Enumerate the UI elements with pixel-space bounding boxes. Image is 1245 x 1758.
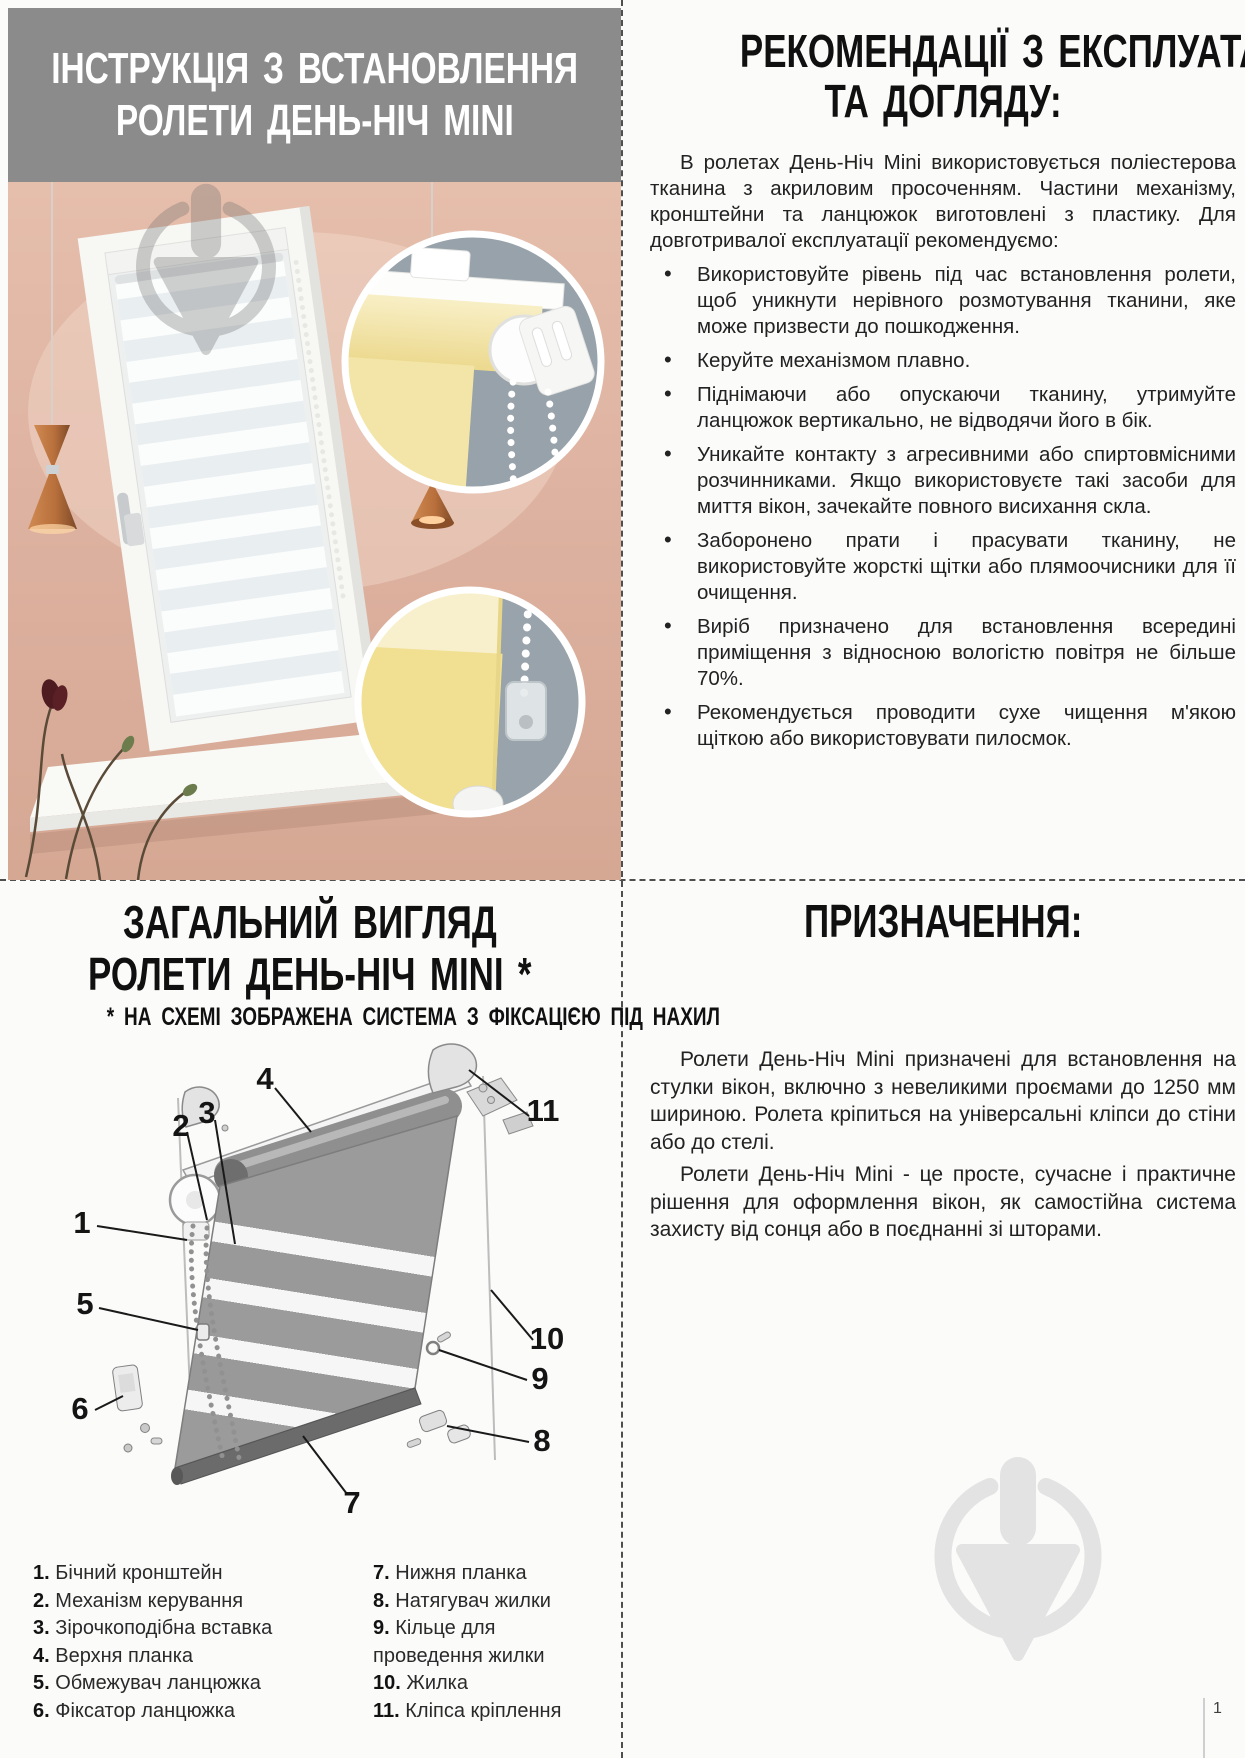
callout-10: 10: [530, 1321, 564, 1356]
callout-6: 6: [71, 1391, 88, 1426]
legend-item: 5. Обмежувач ланцюжка: [33, 1670, 328, 1698]
overview-diagram: 1 2 3 4 5 6 7 8 9 10 11: [35, 1028, 595, 1558]
callout-9: 9: [531, 1361, 548, 1396]
install-section-header: ІНСТРУКЦІЯ З ВСТАНОВЛЕННЯ РОЛЕТИ ДЕНЬ-НІ…: [8, 8, 621, 182]
install-title-line1: ІНСТРУКЦІЯ З ВСТАНОВЛЕННЯ: [0, 43, 661, 95]
callout-3: 3: [198, 1095, 215, 1130]
legend-item: 1. Бічний кронштейн: [33, 1560, 328, 1588]
purpose-paragraph: Ролети День-Ніч Mini - це просте, сучасн…: [650, 1161, 1236, 1244]
install-title-line2: РОЛЕТИ ДЕНЬ-НІЧ MINI: [53, 95, 577, 147]
screw: [222, 1125, 228, 1131]
callout-7: 7: [343, 1485, 360, 1520]
callout-4: 4: [256, 1061, 274, 1096]
diagram-legend-left: 1. Бічний кронштейн 2. Механізм керуванн…: [33, 1560, 328, 1725]
purpose-section: ПРИЗНАЧЕННЯ: Ролети День-Ніч Mini призна…: [650, 896, 1236, 1249]
page-number: 1: [1213, 1700, 1222, 1718]
screw: [436, 1331, 451, 1343]
care-title: РЕКОМЕНДАЦІЇ З ЕКСПЛУАТАЦІЇ ТА ДОГЛЯДУ:: [650, 26, 1236, 126]
care-bullet: •Виріб призначено для встановлення всере…: [650, 614, 1236, 692]
overview-title: ЗАГАЛЬНИЙ ВИГЛЯД РОЛЕТИ ДЕНЬ-НІЧ MINI * …: [10, 896, 610, 1034]
legend-item: 4. Верхня планка: [33, 1643, 328, 1671]
callout-11: 11: [527, 1093, 560, 1128]
footer-divider: [1203, 1698, 1205, 1758]
screw: [141, 1424, 150, 1433]
care-intro: В ролетах День-Ніч Mini використовується…: [650, 150, 1236, 254]
care-section: РЕКОМЕНДАЦІЇ З ЕКСПЛУАТАЦІЇ ТА ДОГЛЯДУ: …: [650, 26, 1236, 752]
care-bullet: •Заборонено прати і прасувати тканину, н…: [650, 528, 1236, 606]
legend-item: 11. Кліпса кріплення: [373, 1698, 601, 1726]
screw: [406, 1438, 421, 1448]
purpose-title: ПРИЗНАЧЕННЯ:: [650, 896, 1236, 946]
care-bullet: •Використовуйте рівень під час встановле…: [650, 262, 1236, 340]
care-bullet: •Рекомендується проводити сухе чищення м…: [650, 700, 1236, 752]
care-bullet-list: •Використовуйте рівень під час встановле…: [650, 262, 1236, 752]
bullet-icon: •: [664, 699, 672, 725]
instruction-leaflet-page: ІНСТРУКЦІЯ З ВСТАНОВЛЕННЯ РОЛЕТИ ДЕНЬ-НІ…: [0, 0, 1245, 1758]
legend-item: 10. Жилка: [373, 1670, 601, 1698]
installation-photo: [8, 182, 621, 880]
chain-fixator: [112, 1364, 143, 1411]
legend-item: 9. Кільце для проведення жилки: [373, 1615, 601, 1670]
screw: [124, 1444, 132, 1452]
care-bullet: •Уникайте контакту з агресивними або спи…: [650, 442, 1236, 520]
wire-tensioner: [418, 1409, 448, 1433]
watermark-logo-small: [130, 150, 290, 360]
legend-item: 7. Нижня планка: [373, 1560, 601, 1588]
chain-limiter: [197, 1324, 209, 1340]
purpose-paragraph: Ролети День-Ніч Mini призначені для вста…: [650, 1046, 1236, 1156]
bullet-icon: •: [664, 381, 672, 407]
care-body: В ролетах День-Ніч Mini використовується…: [650, 150, 1236, 752]
bullet-icon: •: [664, 347, 672, 373]
legend-item: 2. Механізм керування: [33, 1588, 328, 1616]
legend-item: 8. Натягувач жилки: [373, 1588, 601, 1616]
legend-item: 3. Зірочкоподібна вставка: [33, 1615, 328, 1643]
bullet-icon: •: [664, 527, 672, 553]
screw: [151, 1438, 162, 1444]
screw: [479, 1084, 487, 1092]
callout-1: 1: [73, 1205, 90, 1240]
callout-2: 2: [172, 1108, 189, 1143]
watermark-logo-large: [925, 1440, 1115, 1670]
callout-8: 8: [533, 1423, 550, 1458]
purpose-body: Ролети День-Ніч Mini призначені для вста…: [650, 1046, 1236, 1244]
bullet-icon: •: [664, 613, 672, 639]
care-bullet: •Керуйте механізмом плавно.: [650, 348, 1236, 374]
legend-item: 6. Фіксатор ланцюжка: [33, 1698, 328, 1726]
wire-right: [483, 1076, 495, 1460]
bottom-bar-cap: [171, 1467, 183, 1485]
bullet-icon: •: [664, 441, 672, 467]
screw: [488, 1097, 495, 1104]
bullet-icon: •: [664, 261, 672, 287]
care-bullet: •Піднімаючи або опускаючи тканину, утрим…: [650, 382, 1236, 434]
wire-ring: [427, 1342, 439, 1354]
diagram-legend-right: 7. Нижня планка 8. Натягувач жилки 9. Кі…: [373, 1560, 601, 1725]
callout-5: 5: [76, 1286, 93, 1321]
